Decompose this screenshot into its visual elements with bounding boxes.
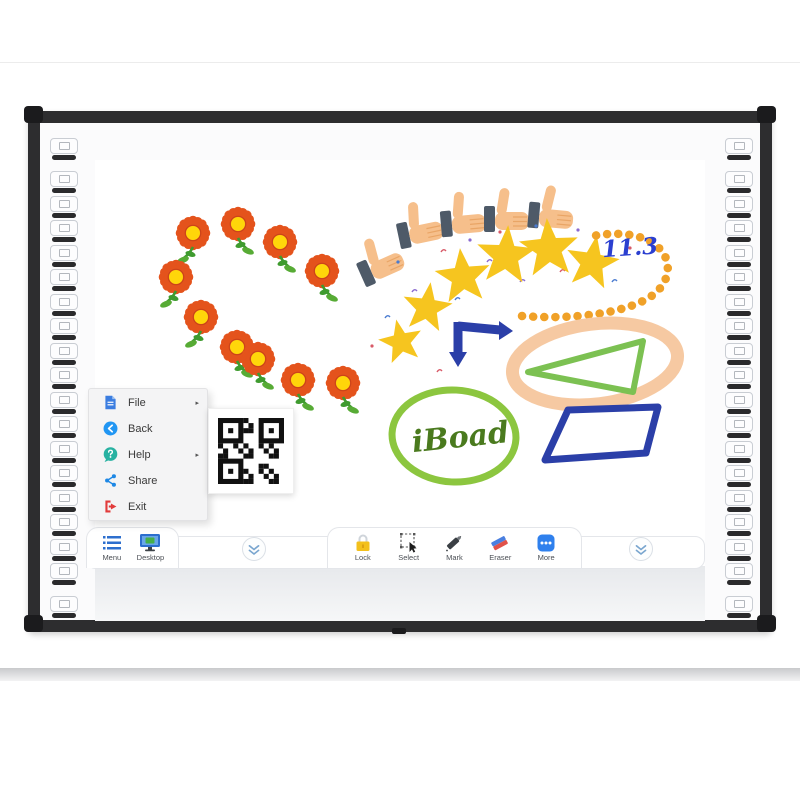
eraser-icon <box>489 532 511 554</box>
select-icon <box>398 532 420 554</box>
dock-tab-center: Lock Select Mark <box>327 527 582 568</box>
hotkey-face[interactable] <box>725 220 753 236</box>
hotkey-glyph-icon <box>734 420 745 428</box>
hotkey-label-bar <box>52 155 76 160</box>
hotkey-button[interactable] <box>725 171 753 193</box>
hotkey-face[interactable] <box>50 220 78 236</box>
hotkey-face[interactable] <box>725 441 753 457</box>
hotkey-label-bar <box>52 262 76 267</box>
hotkey-glyph-icon <box>59 494 70 502</box>
hotkey-glyph-icon <box>734 224 745 232</box>
hotkey-button[interactable] <box>725 196 753 218</box>
hotkey-glyph-icon <box>59 249 70 257</box>
hotkey-button[interactable] <box>50 367 78 389</box>
hotkey-face[interactable] <box>725 392 753 408</box>
hotkey-face[interactable] <box>50 596 78 612</box>
hotkey-face[interactable] <box>725 343 753 359</box>
hotkey-glyph-icon <box>734 142 745 150</box>
hotkey-label-bar <box>52 458 76 463</box>
hotkey-label-bar <box>727 335 751 340</box>
hotkey-face[interactable] <box>50 563 78 579</box>
hotkey-button[interactable] <box>50 220 78 242</box>
hotkey-face[interactable] <box>50 441 78 457</box>
back-icon <box>102 420 119 437</box>
hotkey-face[interactable] <box>725 138 753 154</box>
menu-item-help[interactable]: Help ▸ <box>89 442 207 467</box>
hotkey-button[interactable] <box>50 245 78 267</box>
hotkey-face[interactable] <box>50 138 78 154</box>
hotkey-face[interactable] <box>725 196 753 212</box>
hotkey-label-bar <box>727 458 751 463</box>
hotkey-label-bar <box>727 580 751 585</box>
chevron-double-down-icon <box>631 539 651 559</box>
hotkey-glyph-icon <box>59 200 70 208</box>
hotkey-label-bar <box>52 384 76 389</box>
hotkey-face[interactable] <box>725 539 753 555</box>
hotkey-label-bar <box>727 409 751 414</box>
hotkey-face[interactable] <box>50 294 78 310</box>
hotkey-button[interactable] <box>50 171 78 193</box>
hotkey-glyph-icon <box>734 273 745 281</box>
chevron-double-down-icon <box>244 539 264 559</box>
hotkey-button[interactable] <box>725 514 753 536</box>
hotkey-label-bar <box>52 409 76 414</box>
dock-button-eraser[interactable]: Eraser <box>489 532 511 562</box>
more-icon <box>535 532 557 554</box>
hotkey-button[interactable] <box>50 514 78 536</box>
dock-button-label: Desktop <box>137 554 165 562</box>
hotkey-button[interactable] <box>50 343 78 365</box>
hotkey-button[interactable] <box>50 196 78 218</box>
hotkey-glyph-icon <box>59 600 70 608</box>
dock-button-mark[interactable]: Mark <box>443 532 465 562</box>
hotkey-button[interactable] <box>50 441 78 463</box>
hotkey-face[interactable] <box>50 343 78 359</box>
hotkey-face[interactable] <box>50 490 78 506</box>
menu-item-label: File <box>128 397 146 409</box>
hotkey-face[interactable] <box>50 196 78 212</box>
dock-button-label: Eraser <box>489 554 511 562</box>
hotkey-glyph-icon <box>59 175 70 183</box>
hotkey-face[interactable] <box>725 563 753 579</box>
hotkey-label-bar <box>727 556 751 561</box>
hotkey-label-bar <box>52 556 76 561</box>
hotkey-label-bar <box>727 613 751 618</box>
hotkey-face[interactable] <box>725 367 753 383</box>
hotkey-button[interactable] <box>50 294 78 316</box>
hotkey-label-bar <box>727 482 751 487</box>
menu-item-label: Help <box>128 449 151 461</box>
dock-button-label: Mark <box>446 554 463 562</box>
hotkey-label-bar <box>52 213 76 218</box>
menu-item-share[interactable]: Share <box>89 468 207 493</box>
hotkey-glyph-icon <box>59 322 70 330</box>
hotkey-button[interactable] <box>50 539 78 561</box>
hotkey-glyph-icon <box>734 518 745 526</box>
menu-item-label: Back <box>128 423 152 435</box>
hotkey-label-bar <box>52 311 76 316</box>
dock-collapse-button-left[interactable] <box>242 537 266 561</box>
hotkey-face[interactable] <box>725 514 753 530</box>
menu-item-label: Share <box>128 475 157 487</box>
frame-corner-cap <box>24 106 43 123</box>
hotkey-button[interactable] <box>725 269 753 291</box>
hotkey-glyph-icon <box>59 518 70 526</box>
hotkey-face[interactable] <box>50 465 78 481</box>
hotkey-label-bar <box>727 237 751 242</box>
file-icon <box>102 394 119 411</box>
hotkey-face[interactable] <box>725 245 753 261</box>
hotkey-glyph-icon <box>59 371 70 379</box>
hotkey-button[interactable] <box>725 367 753 389</box>
frame-bottom-bump <box>392 628 406 634</box>
hotkey-face[interactable] <box>725 269 753 285</box>
hotkey-label-bar <box>727 188 751 193</box>
hotkey-face[interactable] <box>725 465 753 481</box>
hotkey-face[interactable] <box>725 416 753 432</box>
hotkey-label-bar <box>52 613 76 618</box>
page-shadow-band <box>0 668 800 681</box>
hotkey-button[interactable] <box>725 245 753 267</box>
frame-corner-cap <box>24 615 43 632</box>
hotkey-glyph-icon <box>734 396 745 404</box>
hotkey-glyph-icon <box>734 322 745 330</box>
lock-icon <box>352 532 374 554</box>
hotkey-glyph-icon <box>734 567 745 575</box>
hotkey-face[interactable] <box>725 294 753 310</box>
exit-icon <box>102 498 119 515</box>
dock-button-lock[interactable]: Lock <box>352 532 374 562</box>
hotkey-glyph-icon <box>59 420 70 428</box>
hotkey-glyph-icon <box>59 445 70 453</box>
hotkey-button[interactable] <box>725 318 753 340</box>
hotkey-glyph-icon <box>59 543 70 551</box>
hotkey-glyph-icon <box>734 371 745 379</box>
hotkey-button[interactable] <box>725 416 753 438</box>
dock-button-desktop[interactable]: Desktop <box>137 532 165 562</box>
hotkey-label-bar <box>727 213 751 218</box>
hotkey-face[interactable] <box>50 539 78 555</box>
hotkey-glyph-icon <box>59 567 70 575</box>
hotkey-button[interactable] <box>50 269 78 291</box>
hotkey-glyph-icon <box>59 298 70 306</box>
hotkey-label-bar <box>727 262 751 267</box>
hotkey-glyph-icon <box>734 494 745 502</box>
hotkey-glyph-icon <box>734 175 745 183</box>
hotkey-button[interactable] <box>725 465 753 487</box>
hotkey-face[interactable] <box>50 367 78 383</box>
dock-button-menu[interactable]: Menu <box>101 532 123 562</box>
hotkey-face[interactable] <box>50 416 78 432</box>
hotkey-face[interactable] <box>50 392 78 408</box>
frame-corner-cap <box>757 106 776 123</box>
hotkey-button[interactable] <box>725 563 753 585</box>
page-divider-top <box>0 62 800 63</box>
screen-bottom-strip <box>95 566 705 621</box>
hotkey-label-bar <box>727 507 751 512</box>
hotkey-button[interactable] <box>50 392 78 414</box>
hotkey-face[interactable] <box>725 490 753 506</box>
hotkey-glyph-icon <box>734 347 745 355</box>
hotkey-glyph-icon <box>59 396 70 404</box>
hotkey-glyph-icon <box>734 600 745 608</box>
hotkey-label-bar <box>52 531 76 536</box>
popup-menu: File ▸ Back Help ▸ <box>88 388 208 521</box>
hotkey-label-bar <box>52 286 76 291</box>
hotkey-button[interactable] <box>725 294 753 316</box>
hotkey-glyph-icon <box>734 249 745 257</box>
hotkey-face[interactable] <box>725 171 753 187</box>
menu-item-label: Exit <box>128 501 146 513</box>
hotkey-button[interactable] <box>50 138 78 160</box>
hotkey-button[interactable] <box>50 490 78 512</box>
hotkey-button[interactable] <box>725 220 753 242</box>
hotkey-label-bar <box>727 360 751 365</box>
mark-icon <box>443 532 465 554</box>
submenu-arrow-icon: ▸ <box>195 451 199 459</box>
dock-button-label: Menu <box>102 554 121 562</box>
help-icon <box>102 446 119 463</box>
whiteboard-product-view: iBoad 11.3 File ▸ Back <box>0 0 800 800</box>
submenu-arrow-icon: ▸ <box>195 399 199 407</box>
hotkey-glyph-icon <box>59 142 70 150</box>
hotkey-button[interactable] <box>725 596 753 618</box>
hotkey-label-bar <box>52 580 76 585</box>
hotkey-label-bar <box>52 237 76 242</box>
hotkey-glyph-icon <box>59 347 70 355</box>
menu-icon <box>101 532 123 554</box>
frame-corner-cap <box>757 615 776 632</box>
hotkey-button[interactable] <box>50 465 78 487</box>
hotkey-face[interactable] <box>725 596 753 612</box>
hotkey-face[interactable] <box>50 171 78 187</box>
hotkey-glyph-icon <box>734 298 745 306</box>
hotkey-face[interactable] <box>50 318 78 334</box>
dock-button-label: More <box>538 554 555 562</box>
dock-tab-left: Menu Desktop <box>86 527 179 568</box>
hotkey-label-bar <box>727 531 751 536</box>
qr-code <box>218 418 284 484</box>
menu-item-exit[interactable]: Exit <box>89 494 207 519</box>
hotkey-button[interactable] <box>725 490 753 512</box>
hotkey-label-bar <box>52 360 76 365</box>
dock-button-more[interactable]: More <box>535 532 557 562</box>
menu-item-file[interactable]: File ▸ <box>89 390 207 415</box>
hotkey-button[interactable] <box>50 318 78 340</box>
hotkey-label-bar <box>52 507 76 512</box>
hotkey-glyph-icon <box>734 200 745 208</box>
hotkey-button[interactable] <box>725 138 753 160</box>
hotkey-glyph-icon <box>59 224 70 232</box>
hotkey-glyph-icon <box>59 469 70 477</box>
menu-item-back[interactable]: Back <box>89 416 207 441</box>
hotkey-face[interactable] <box>50 514 78 530</box>
hotkey-label-bar <box>52 433 76 438</box>
dock-button-select[interactable]: Select <box>398 532 420 562</box>
desktop-icon <box>139 532 161 554</box>
hotkey-face[interactable] <box>50 269 78 285</box>
hotkey-label-bar <box>727 433 751 438</box>
dock-button-label: Lock <box>355 554 371 562</box>
hotkey-label-bar <box>52 188 76 193</box>
hotkey-label-bar <box>727 311 751 316</box>
hotkey-glyph-icon <box>59 273 70 281</box>
dock-collapse-button-right[interactable] <box>629 537 653 561</box>
hotkey-glyph-icon <box>734 469 745 477</box>
hotkey-button[interactable] <box>50 596 78 618</box>
hotkey-label-bar <box>52 335 76 340</box>
share-icon <box>102 472 119 489</box>
hotkey-button[interactable] <box>50 563 78 585</box>
qr-code-panel <box>208 408 294 494</box>
hotkey-label-bar <box>727 286 751 291</box>
hotkey-face[interactable] <box>50 245 78 261</box>
hotkey-label-bar <box>727 155 751 160</box>
hotkey-glyph-icon <box>734 445 745 453</box>
hotkey-label-bar <box>727 384 751 389</box>
hotkey-face[interactable] <box>725 318 753 334</box>
hotkey-glyph-icon <box>734 543 745 551</box>
hotkey-button[interactable] <box>725 441 753 463</box>
dock-button-label: Select <box>398 554 419 562</box>
hotkey-label-bar <box>52 482 76 487</box>
hotkey-button[interactable] <box>50 416 78 438</box>
hotkey-button[interactable] <box>725 392 753 414</box>
hotkey-button[interactable] <box>725 343 753 365</box>
hotkey-button[interactable] <box>725 539 753 561</box>
